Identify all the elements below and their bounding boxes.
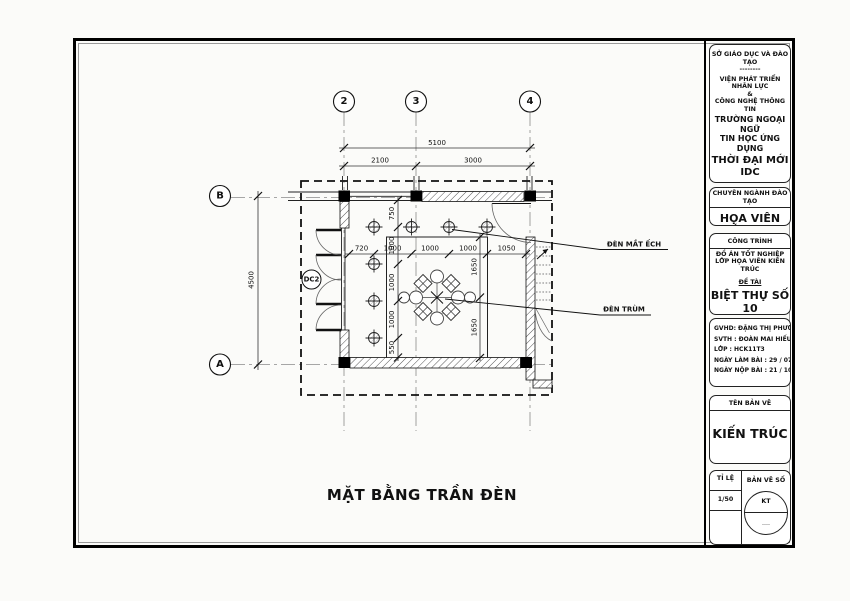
scale-value: 1/50	[710, 491, 741, 511]
scale-cell: TỈ LỆ 1/50	[710, 471, 742, 544]
student-row: SVTH : ĐOÀN MAI HIẾU	[714, 335, 790, 346]
title-block: SỞ GIÁO DỤC VÀ ĐÀO TẠO -------- VIỆN PHÁ…	[709, 38, 791, 548]
topic-value: BIỆT THỰ SỐ 10	[710, 289, 790, 315]
org-line6: TRƯỜNG NGOẠI NGỮ	[710, 115, 790, 134]
project-line1: ĐỒ ÁN TỐT NGHIỆP	[710, 251, 790, 259]
org-line2: --------	[710, 66, 790, 74]
sheet-number-dots: ....	[745, 513, 787, 534]
scale-sheetno-box: TỈ LỆ 1/50 BẢN VẼ SỐ KT ....	[709, 470, 791, 545]
org-box: SỞ GIÁO DỤC VÀ ĐÀO TẠO -------- VIỆN PHÁ…	[709, 44, 791, 183]
sheet-name-box: TÊN BẢN VẼ KIẾN TRÚC	[709, 395, 791, 464]
sheet-number-cell: BẢN VẼ SỐ KT ....	[742, 471, 790, 544]
sheet-number-circle: KT ....	[744, 491, 788, 535]
submit-date-row: NGÀY NỘP BÀI : 21 / 10 / 2013	[714, 366, 790, 377]
scale-label: TỈ LỆ	[710, 471, 741, 491]
major-box: CHUYÊN NGÀNH ĐÀO TẠO HỌA VIÊN KIẾN TRÚC	[709, 187, 791, 226]
sheet-border-inner	[78, 43, 790, 543]
major-header: CHUYÊN NGÀNH ĐÀO TẠO	[710, 190, 790, 205]
major-value: HỌA VIÊN KIẾN TRÚC	[710, 210, 790, 226]
org-line7: TIN HỌC ỨNG DỤNG	[710, 134, 790, 153]
sheet-name-header: TÊN BẢN VẼ	[710, 400, 790, 408]
advisor-row: GVHD: ĐẶNG THỊ PHƯƠNG CHI	[714, 324, 790, 335]
titleblock-divider	[704, 38, 706, 548]
people-box: GVHD: ĐẶNG THỊ PHƯƠNG CHI SVTH : ĐOÀN MA…	[709, 318, 791, 387]
org-line4: &	[710, 91, 790, 99]
org-line1: SỞ GIÁO DỤC VÀ ĐÀO TẠO	[710, 51, 790, 66]
org-name: THỜI ĐẠI MỚI IDC	[710, 155, 790, 179]
class-row: LỚP : HCK11T3	[714, 345, 790, 356]
topic-label: ĐỀ TÀI	[710, 279, 790, 287]
project-box: CÔNG TRÌNH ĐỒ ÁN TỐT NGHIỆP LỚP HỌA VIÊN…	[709, 233, 791, 315]
org-line3: VIỆN PHÁT TRIỂN NHÂN LỰC	[710, 76, 790, 91]
start-date-row: NGÀY LÀM BÀI : 29 / 07 / 2013	[714, 356, 790, 367]
project-line2: LỚP HỌA VIÊN KIẾN TRÚC	[710, 258, 790, 273]
sheet-number-code: KT	[745, 492, 787, 514]
sheet-number-label: BẢN VẼ SỐ	[742, 471, 790, 485]
sheet-border	[73, 38, 795, 548]
project-header: CÔNG TRÌNH	[710, 238, 790, 246]
sheet-name-value: KIẾN TRÚC	[710, 413, 790, 441]
org-line5: CÔNG NGHỆ THÔNG TIN	[710, 98, 790, 113]
